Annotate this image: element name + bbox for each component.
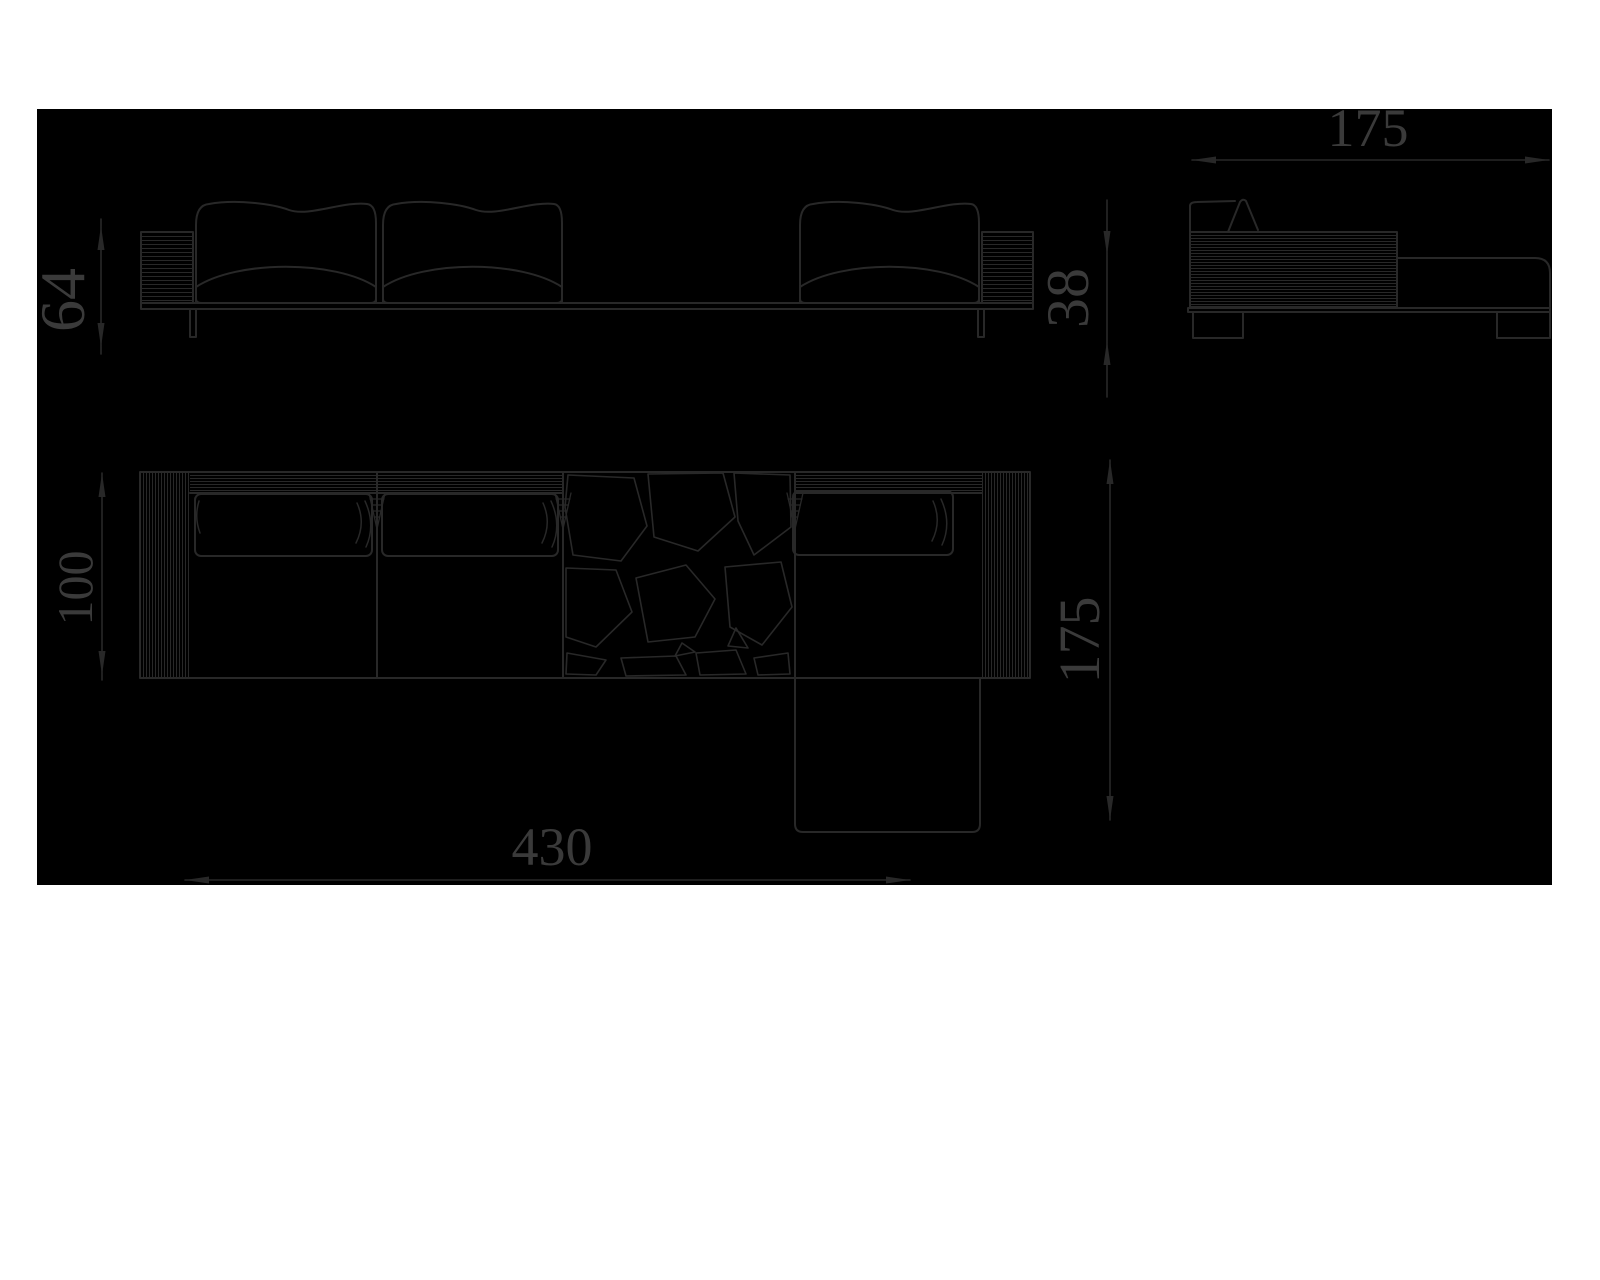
dim-label-plan-depth: 175 [1051, 597, 1109, 684]
plan-view [140, 472, 1030, 832]
dimension-arrowheads [98, 157, 1550, 884]
stone-texture-panel [565, 473, 792, 676]
side-view [1188, 200, 1550, 338]
drawing-canvas: 64 38 175 100 175 430 [37, 109, 1552, 885]
dim-label-seat-height: 38 [1038, 268, 1098, 328]
dim-label-body-depth: 100 [50, 551, 100, 626]
sofa-linework [37, 109, 1552, 885]
dim-label-front-height: 64 [31, 268, 95, 332]
drawing-page: 64 38 175 100 175 430 [0, 0, 1600, 1280]
front-elevation-view [141, 202, 1033, 337]
dim-label-side-depth: 175 [1328, 101, 1409, 155]
dim-label-total-width: 430 [512, 820, 593, 874]
pillow-crease-marks [197, 499, 947, 547]
